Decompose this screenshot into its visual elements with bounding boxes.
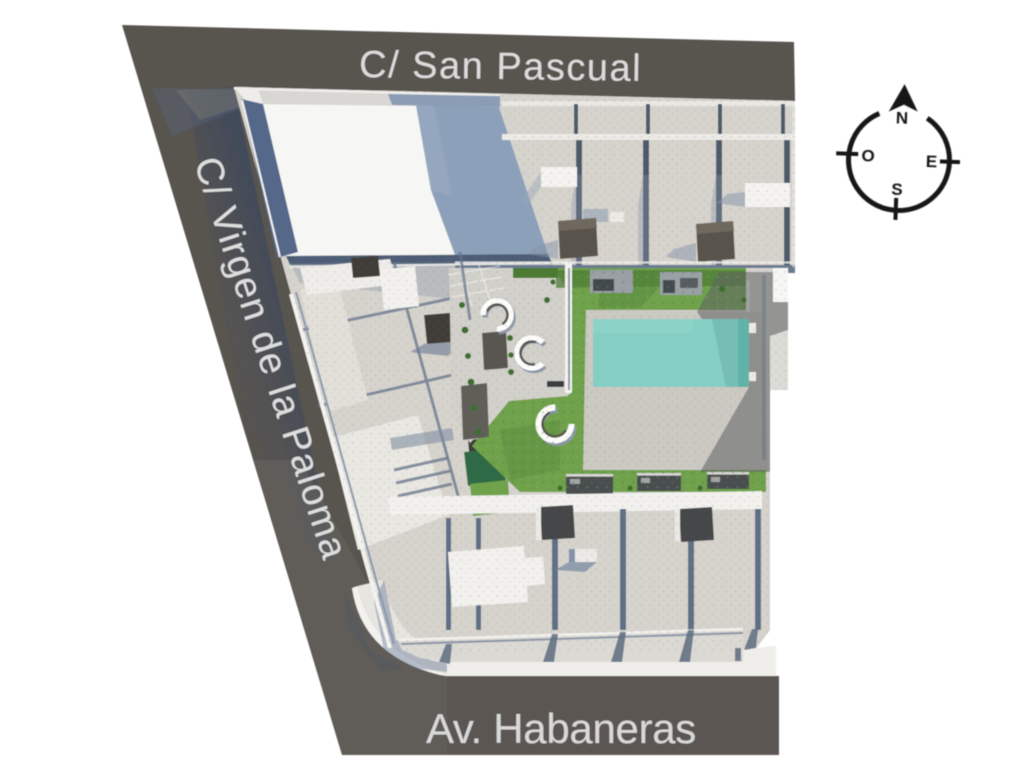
svg-text:Av. Habaneras: Av. Habaneras — [426, 705, 696, 752]
svg-text:C/ San Pascual: C/ San Pascual — [359, 44, 642, 90]
svg-text:E: E — [925, 152, 937, 171]
svg-text:S: S — [891, 180, 903, 199]
svg-text:N: N — [895, 108, 908, 127]
svg-text:O: O — [861, 146, 875, 165]
